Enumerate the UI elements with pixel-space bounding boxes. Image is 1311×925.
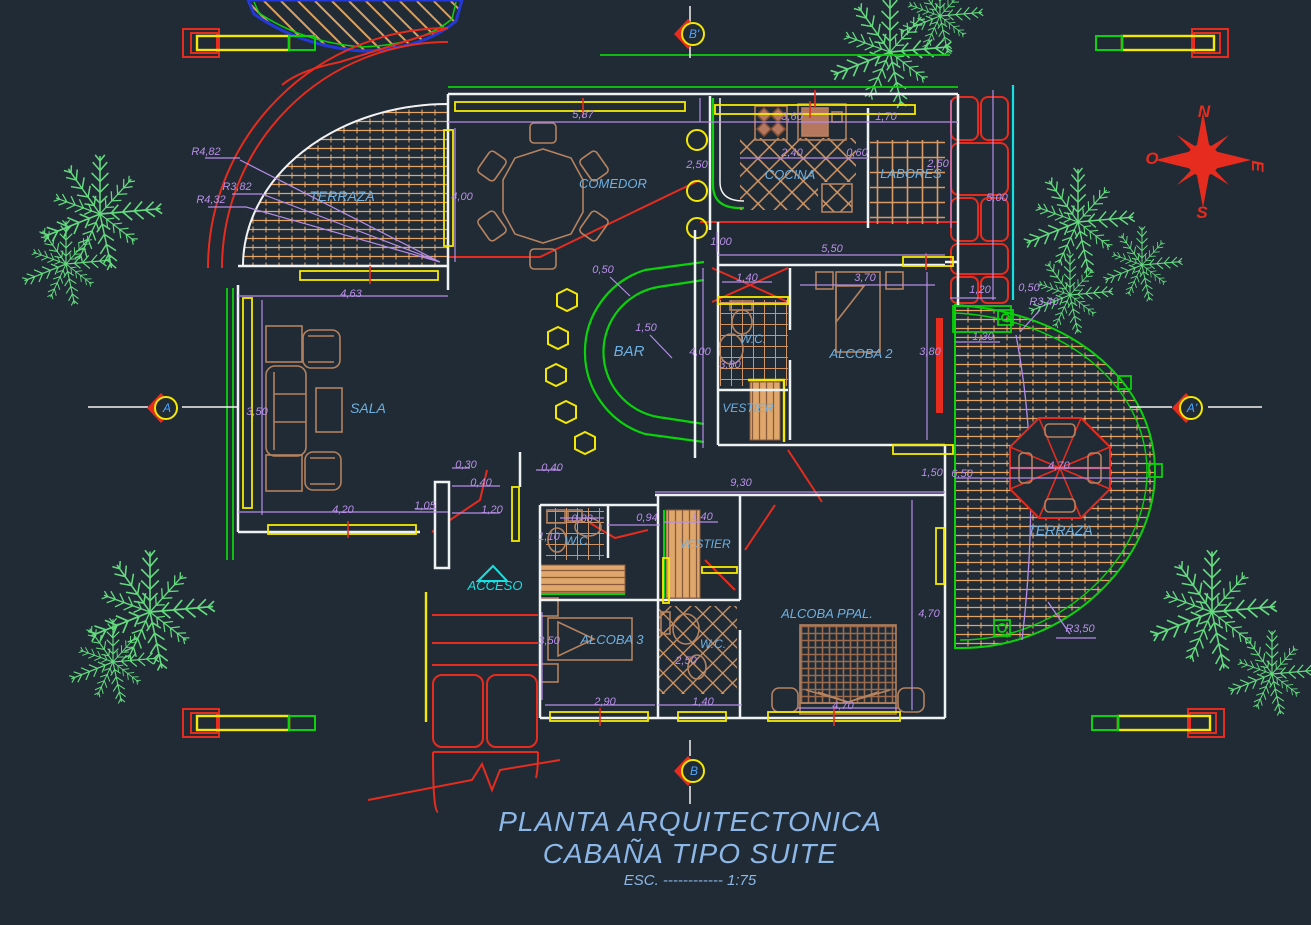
entry-steps	[368, 615, 560, 812]
plan-subtitle: CABAÑA TIPO SUITE	[498, 838, 882, 870]
cad-floor-plan: TERRAZACOMEDORCOCINALABORESBARSALAW.C.AL…	[0, 0, 1311, 925]
dim-360: 3,60	[781, 111, 803, 123]
dim-650: 6,50	[951, 468, 973, 480]
plan-drawing: TERRAZACOMEDORCOCINALABORESBARSALAW.C.AL…	[0, 0, 1311, 925]
dim-050-right: 0,50	[1018, 282, 1040, 294]
dim-094: 0,94	[636, 512, 657, 524]
dim-030: 0,30	[455, 459, 477, 471]
room-label-vestier-bottom: VESTIER	[679, 537, 731, 551]
planter-top-right	[1096, 29, 1228, 57]
dim-400-center: 4,00	[689, 346, 711, 358]
dim-400-comedor: 4,00	[451, 191, 473, 203]
vestier-bottom-closet	[666, 510, 700, 598]
title-block: PLANTA ARQUITECTONICA CABAÑA TIPO SUITE …	[498, 806, 882, 889]
section-marker-b: B	[690, 764, 698, 778]
dim-110: 1,10	[538, 531, 560, 543]
dim-040-b: 0,40	[541, 462, 563, 474]
wall-accent-red	[936, 318, 943, 413]
dim-105: 1,05	[414, 500, 436, 512]
labores-floor	[870, 140, 945, 224]
room-label-wc-bottom: W.C.	[700, 637, 726, 651]
compass-rose	[1155, 112, 1251, 208]
dim-130: 1,30	[972, 331, 994, 343]
room-label-alcoba3: ALCOBA 3	[579, 632, 644, 647]
dim-250-columns: 2,50	[685, 159, 708, 171]
dim-550: 5,50	[821, 243, 843, 255]
dim-380-alcoba2: 3,80	[919, 346, 941, 358]
dim-350-sala: 3,50	[246, 406, 268, 418]
dim-250-wc2: 2,50	[674, 655, 697, 667]
dim-150-right: 1,50	[921, 467, 943, 479]
dim-370: 3,70	[854, 272, 876, 284]
bar-counter	[585, 262, 704, 442]
dim-250-labores: 2,50	[926, 158, 949, 170]
dim-350-alcoba3: 3,50	[538, 635, 560, 647]
dim-120-right: 1,20	[969, 284, 991, 296]
dim-r482: R4,82	[191, 146, 220, 158]
dim-930: 9,30	[730, 477, 752, 489]
dim-500: 5,00	[986, 192, 1008, 204]
dim-240: 2,40	[780, 147, 803, 159]
dim-140-vestier: 1,40	[691, 511, 713, 523]
dim-290: 2,90	[593, 696, 616, 708]
dim-587: 5,87	[572, 109, 594, 121]
room-label-bar: BAR	[614, 343, 645, 360]
dim-r382: R3,82	[222, 181, 251, 193]
room-label-alcoba2: ALCOBA 2	[828, 346, 893, 361]
dim-100: 1,00	[710, 236, 732, 248]
room-label-terraza-right: TERRAZA	[1027, 522, 1092, 538]
compass-east: E	[1248, 160, 1267, 172]
plan-scale: ESC. ------------ 1:75	[498, 872, 882, 889]
dim-170: 1,70	[875, 111, 897, 123]
room-label-acceso: ACCESO	[467, 578, 523, 593]
dim-140-bottom: 1,40	[692, 696, 714, 708]
room-label-comedor: COMEDOR	[579, 176, 647, 191]
dim-088: 0,88	[571, 513, 593, 525]
plan-title: PLANTA ARQUITECTONICA	[498, 806, 882, 838]
dim-r340: R3,40	[1029, 296, 1059, 308]
kitchen-island	[822, 184, 852, 212]
room-label-cocina: COCINA	[765, 167, 816, 182]
compass-north: N	[1198, 102, 1211, 121]
dim-150-bar: 1,50	[635, 322, 657, 334]
dim-380-wc: 3,80	[719, 359, 741, 371]
dim-470-ppal: 4,70	[918, 608, 940, 620]
dim-r432: R4,32	[196, 194, 225, 206]
planter-bottom-right	[1092, 709, 1224, 737]
compass-west: O	[1145, 149, 1158, 168]
dim-120-door: 1,20	[481, 504, 503, 516]
section-marker-a: A	[162, 401, 171, 415]
dim-060: 0,60	[846, 147, 868, 159]
dim-040-a: 0,40	[470, 477, 492, 489]
dim-140-wc: 1,40	[736, 272, 758, 284]
compass-south: S	[1196, 203, 1208, 222]
room-label-terraza-left: TERRAZA	[309, 188, 374, 204]
room-label-vestier-top: VESTIER	[722, 401, 774, 415]
dim-050-bar: 0,50	[592, 264, 614, 276]
dim-420: 4,20	[332, 504, 354, 516]
dim-463: 4,63	[340, 288, 362, 300]
room-label-alcoba-ppal: ALCOBA PPAL.	[780, 606, 873, 621]
columns	[687, 130, 707, 238]
room-label-wc-top: W.C.	[740, 332, 766, 346]
section-marker-a2: A'	[1186, 401, 1198, 415]
room-label-sala: SALA	[350, 400, 386, 416]
hall-closet	[540, 565, 625, 593]
room-label-wc-mid: W.C.	[565, 534, 591, 548]
terraza-left-deck	[243, 104, 448, 266]
planter-bottom-left	[183, 709, 315, 737]
dim-470-terraza: 4,70	[1048, 460, 1070, 472]
dining-table	[503, 149, 583, 243]
section-marker-b2: B'	[689, 27, 700, 41]
dim-r350: R3,50	[1065, 623, 1095, 635]
dim-470-bed: 4,70	[832, 700, 854, 712]
